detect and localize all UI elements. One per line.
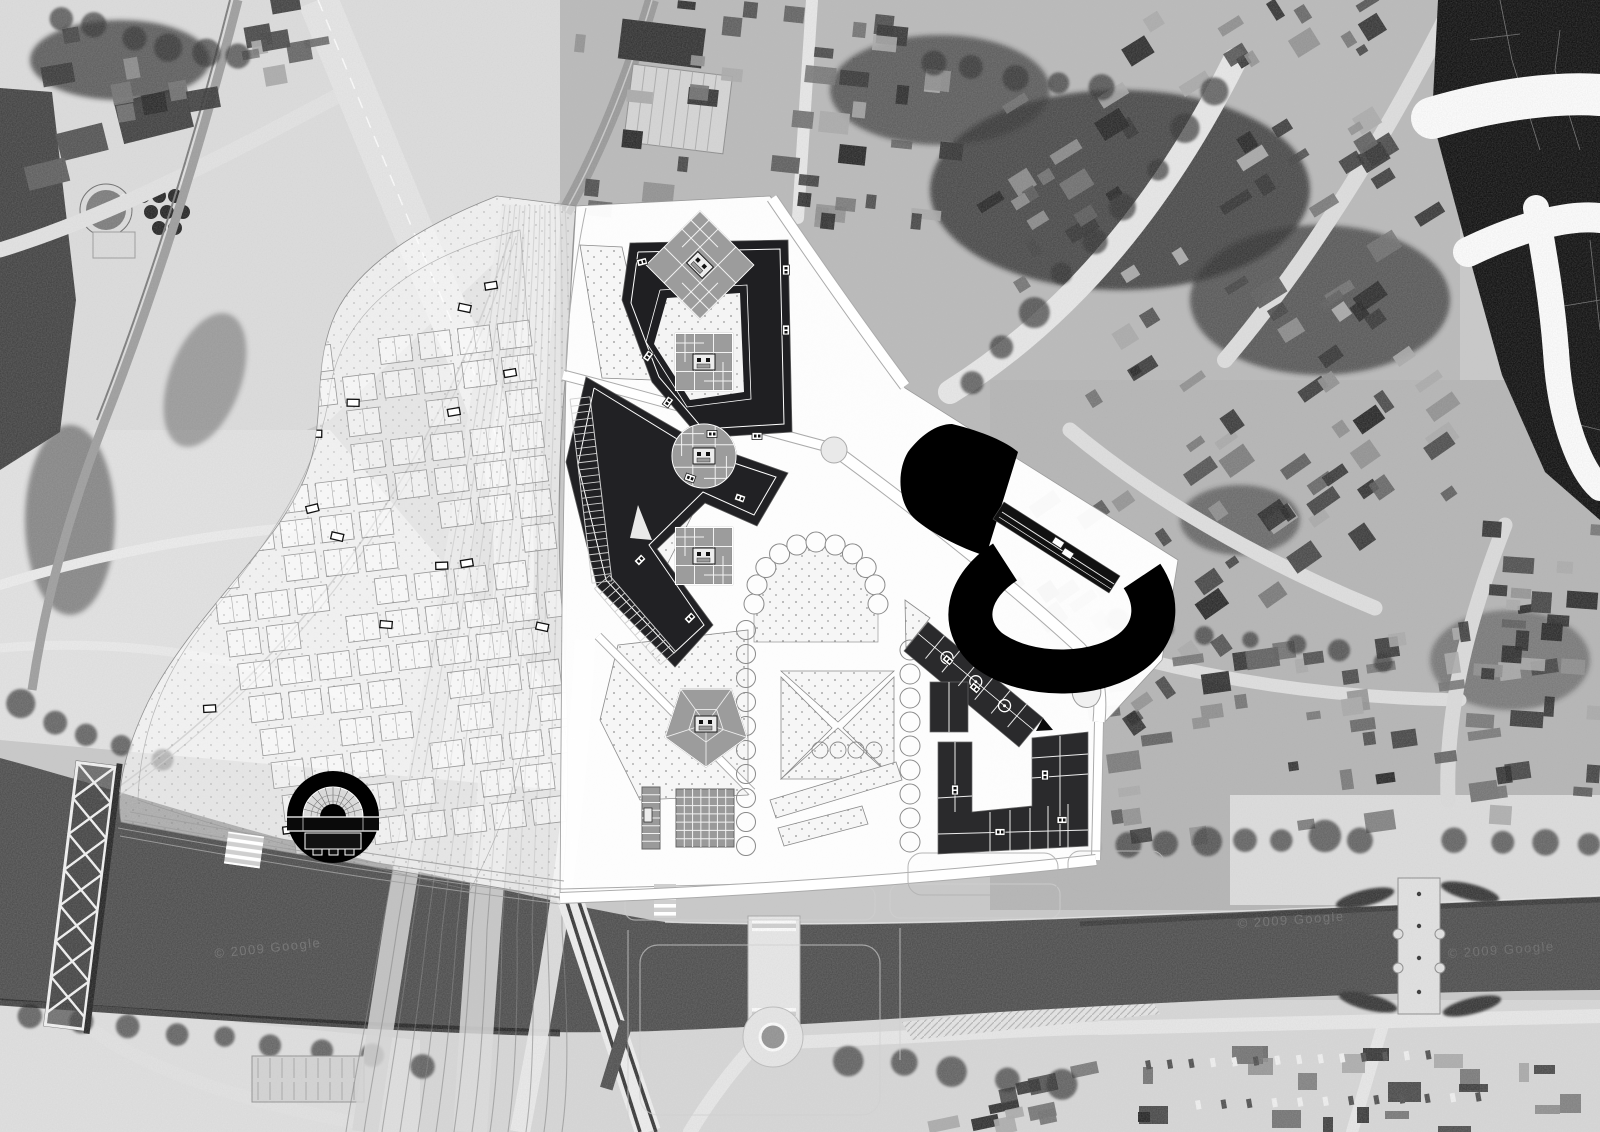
traffic-island [821,437,847,463]
market-grid [642,787,734,849]
roundhouse-theatre [287,771,379,863]
tower-footprint-square [676,334,733,391]
masterplan-image: © 2009 Google © 2009 Google © 2009 Googl… [0,0,1600,1132]
site-plan-svg: © 2009 Google © 2009 Google © 2009 Googl… [0,0,1600,1132]
tower-footprint-square [676,528,733,585]
